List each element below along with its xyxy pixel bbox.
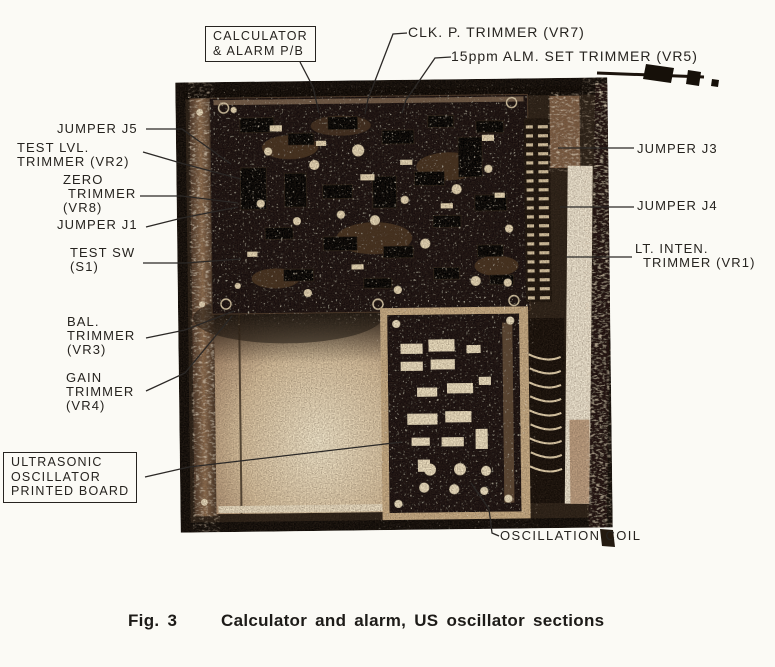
label-gain-trimmer: GAIN TRIMMER (VR4): [66, 371, 134, 413]
label-jumper-j3: JUMPER J3: [637, 142, 718, 156]
label-line: (VR3): [67, 343, 135, 357]
label-bal-trimmer: BAL. TRIMMER (VR3): [67, 315, 135, 357]
label-line: (VR4): [66, 399, 134, 413]
label-line: BAL.: [67, 315, 135, 329]
cable-fragments: [597, 64, 719, 547]
circuit-photo-art: [175, 77, 612, 532]
label-line: LT. INTEN.: [635, 242, 756, 256]
figure-page: CALCULATOR & ALARM P/B ULTRASONIC OSCILL…: [0, 0, 775, 667]
label-line: (VR8): [63, 201, 136, 215]
label-line: GAIN: [66, 371, 134, 385]
label-line: TRIMMER (VR1): [643, 256, 756, 270]
label-line: & ALARM P/B: [213, 44, 308, 59]
label-lt-inten-trimmer: LT. INTEN. TRIMMER (VR1): [635, 242, 756, 270]
label-line: (S1): [70, 260, 135, 274]
figure-number: Fig. 3: [128, 611, 177, 631]
label-jumper-j1: JUMPER J1: [57, 218, 138, 232]
label-line: ZERO: [63, 173, 136, 187]
figure-caption: Calculator and alarm, US oscillator sect…: [221, 611, 604, 631]
label-line: TRIMMER: [68, 187, 136, 201]
label-line: CALCULATOR: [213, 29, 308, 44]
label-line: PRINTED BOARD: [11, 484, 129, 499]
label-clk-p-trimmer: CLK. P. TRIMMER (VR7): [408, 25, 585, 39]
label-line: OSCILLATOR: [11, 470, 129, 485]
label-line: ULTRASONIC: [11, 455, 129, 470]
label-calculator-alarm-pb: CALCULATOR & ALARM P/B: [205, 26, 316, 62]
label-test-sw: TEST SW (S1): [70, 246, 135, 274]
label-oscillation-coil: OSCILLATION COIL: [500, 529, 641, 543]
label-line: TEST SW: [70, 246, 135, 260]
label-line: TRIMMER: [66, 385, 134, 399]
photo-grain: [175, 77, 612, 532]
label-jumper-j4: JUMPER J4: [637, 199, 718, 213]
label-line: TRIMMER: [67, 329, 135, 343]
label-zero-trimmer: ZERO TRIMMER (VR8): [63, 173, 136, 215]
label-jumper-j5: JUMPER J5: [57, 122, 138, 136]
circuit-photo: [175, 77, 612, 532]
label-line: TEST LVL.: [17, 141, 130, 155]
label-test-lvl-trimmer: TEST LVL. TRIMMER (VR2): [17, 141, 130, 169]
label-line: TRIMMER (VR2): [17, 155, 130, 169]
label-15ppm-alm-set-trimmer: 15ppm ALM. SET TRIMMER (VR5): [451, 49, 698, 63]
label-ultrasonic-oscillator-board: ULTRASONIC OSCILLATOR PRINTED BOARD: [3, 452, 137, 503]
